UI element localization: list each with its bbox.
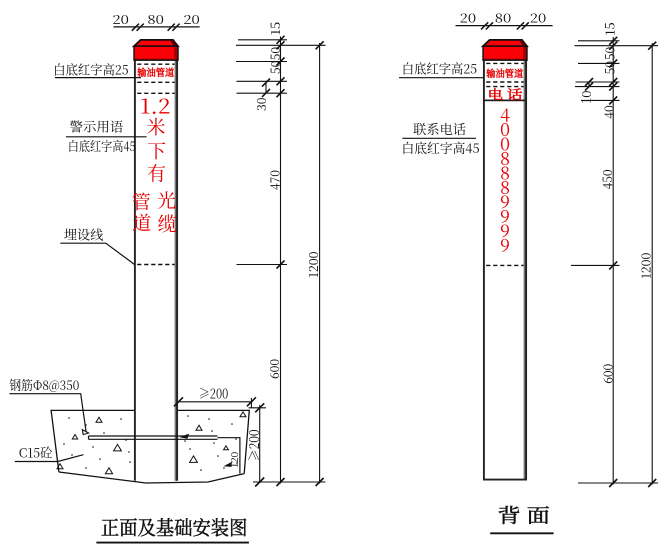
svg-text:9: 9 — [500, 233, 510, 258]
svg-text:米: 米 — [146, 113, 165, 140]
svg-text:15: 15 — [601, 22, 619, 36]
svg-text:联系电话: 联系电话 — [413, 119, 466, 138]
svg-text:20: 20 — [112, 10, 129, 28]
svg-text:1200: 1200 — [637, 253, 655, 280]
svg-text:10: 10 — [577, 90, 595, 104]
svg-text:50: 50 — [601, 61, 619, 75]
svg-text:正面及基础安装图: 正面及基础安装图 — [101, 513, 248, 541]
svg-text:50: 50 — [266, 61, 284, 75]
svg-text:80: 80 — [147, 10, 164, 28]
svg-text:警示用语: 警示用语 — [70, 116, 124, 135]
svg-text:钢筋Φ8@350: 钢筋Φ8@350 — [9, 375, 79, 394]
svg-text:450: 450 — [598, 169, 616, 189]
svg-text:30: 30 — [252, 98, 270, 112]
svg-text:600: 600 — [265, 359, 283, 379]
svg-text:缆: 缆 — [158, 210, 177, 237]
svg-text:50: 50 — [266, 47, 284, 61]
svg-text:470: 470 — [266, 170, 284, 190]
svg-text:输油管道: 输油管道 — [486, 66, 523, 80]
svg-text:15: 15 — [266, 22, 284, 36]
svg-text:白底红字高25: 白底红字高25 — [402, 59, 477, 78]
svg-text:1200: 1200 — [304, 251, 322, 278]
svg-text:白底红字高45: 白底红字高45 — [402, 138, 480, 157]
svg-text:≥200: ≥200 — [199, 382, 229, 402]
svg-text:埋设线: 埋设线 — [64, 225, 104, 244]
svg-text:600: 600 — [599, 364, 617, 384]
svg-text:40: 40 — [600, 105, 618, 119]
svg-text:≥200: ≥200 — [243, 429, 263, 461]
svg-text:道: 道 — [132, 209, 151, 236]
svg-text:输油管道: 输油管道 — [137, 65, 174, 79]
svg-text:白底红字高45: 白底红字高45 — [68, 136, 136, 155]
svg-text:电 话: 电 话 — [488, 85, 524, 103]
svg-text:C15砼: C15砼 — [19, 442, 53, 461]
svg-text:白底红字高25: 白底红字高25 — [53, 59, 128, 78]
svg-text:20: 20 — [183, 10, 200, 28]
svg-text:背 面: 背 面 — [497, 501, 550, 528]
svg-text:50: 50 — [601, 47, 619, 61]
svg-text:120: 120 — [227, 452, 241, 468]
svg-text:20: 20 — [460, 9, 477, 27]
svg-text:20: 20 — [530, 9, 547, 27]
svg-text:80: 80 — [495, 9, 512, 27]
svg-text:有: 有 — [147, 159, 166, 186]
